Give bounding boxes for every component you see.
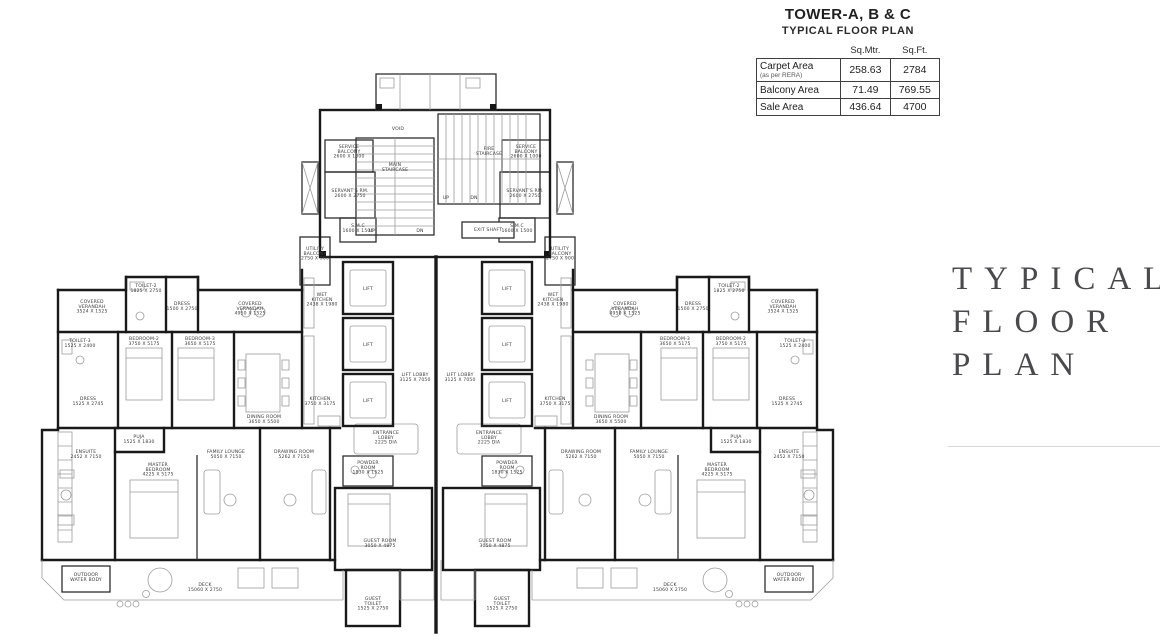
room-label-main-staircase: MAINSTAIRCASE — [382, 162, 408, 173]
room-label-covered-verandah: COVEREDVERANDAH3524 X 1525 — [767, 299, 798, 315]
room-label-toilet-2: TOILET-21825 X 2750 — [130, 283, 161, 294]
room-label-powder-room: POWDERROOM1830 X 1525 — [491, 460, 522, 476]
tower-title: TOWER-A, B & C — [756, 6, 940, 23]
room-label-drawing-room: DRAWING ROOM5262 X 7150 — [274, 449, 314, 460]
room-label-covered-verandah: COVEREDVERANDAH4950 X 1525 — [234, 301, 265, 317]
room-label-lift: LIFT — [502, 398, 512, 404]
room-label-servant-s-rm: SERVANT'S RM.2600 X 2750 — [331, 188, 368, 199]
room-label-lift: LIFT — [502, 342, 512, 348]
page-title: TYPICAL FLOOR PLAN — [952, 258, 1160, 387]
row-label: Balcony Area — [757, 82, 841, 99]
room-label-utility-balcony: UTILITYBALCONY2750 X 900 — [546, 246, 574, 262]
room-label-kitchen: KITCHEN3750 X 3175 — [539, 396, 570, 407]
table-row: Carpet Area(as per RERA) 258.63 2784 — [757, 59, 940, 82]
room-label-fire-staircase: FIRESTAIRCASE — [476, 146, 502, 157]
cell-sqft: 4700 — [890, 99, 939, 116]
row-label: Sale Area — [757, 99, 841, 116]
room-label-wet-kitchen: WETKITCHEN2438 X 1980 — [537, 292, 568, 308]
area-table-corner — [757, 45, 841, 59]
cell-sqft: 769.55 — [890, 82, 939, 99]
room-label-bedroom-3: BEDROOM-33650 X 5175 — [659, 336, 690, 347]
room-label-dn: DN — [470, 195, 477, 201]
room-label-dining-room: DINING ROOM3650 X 5500 — [594, 414, 628, 425]
room-label-toilet-3: TOILET-31525 X 2400 — [64, 338, 95, 349]
room-label-drawing-room: DRAWING ROOM5262 X 7150 — [561, 449, 601, 460]
room-label-guest-toilet: GUESTTOILET1525 X 2750 — [357, 596, 388, 612]
room-label-entrance-lobby: ENTRANCELOBBY2225 DIA — [476, 430, 502, 446]
room-label-puja: PUJA1525 X 1830 — [123, 434, 154, 445]
room-label-toilet-2: TOILET-21825 X 2750 — [713, 283, 744, 294]
room-label-dress: DRESS1500 X 2750 — [166, 301, 197, 312]
room-label-puja: PUJA1525 X 1830 — [720, 434, 751, 445]
room-label-utility-balcony: UTILITYBALCONY2750 X 900 — [301, 246, 329, 262]
cell-sqmtr: 258.63 — [841, 59, 890, 82]
row-label: Carpet Area — [760, 61, 813, 72]
room-label-lift-lobby: LIFT LOBBY3125 X 7050 — [399, 372, 430, 383]
room-label-outdoor: OUTDOORWATER BODY — [773, 572, 805, 583]
room-label-lift: LIFT — [363, 342, 373, 348]
room-label-lift: LIFT — [502, 286, 512, 292]
room-label-servant-s-rm: SERVANT'S RM.2600 X 2750 — [506, 188, 543, 199]
page-title-line2: FLOOR — [952, 301, 1160, 344]
room-label-kitchen: KITCHEN3750 X 3175 — [304, 396, 335, 407]
room-label-covered-verandah: COVEREDVERANDAH4950 X 1525 — [609, 301, 640, 317]
room-label-up: UP — [443, 195, 450, 201]
room-label-deck: DECK15060 X 2750 — [653, 582, 687, 593]
room-label-family-lounge: FAMILY LOUNGE5050 X 7150 — [630, 449, 668, 460]
room-label-bedroom-2: BEDROOM-23750 X 5175 — [128, 336, 159, 347]
room-label-bedroom-3: BEDROOM-33650 X 5175 — [184, 336, 215, 347]
room-label-ensuite: ENSUITE2452 X 7150 — [773, 449, 804, 460]
plan-header: TOWER-A, B & C TYPICAL FLOOR PLAN Sq.Mtr… — [756, 6, 940, 116]
col-sqmtr: Sq.Mtr. — [841, 45, 890, 59]
room-label-exit-shaft: EXIT SHAFT — [474, 227, 502, 233]
room-label-dining-room: DINING ROOM3650 X 5500 — [247, 414, 281, 425]
room-label-outdoor: OUTDOORWATER BODY — [70, 572, 102, 583]
table-row: Sale Area 436.64 4700 — [757, 99, 940, 116]
room-label-covered-verandah: COVEREDVERANDAH3524 X 1525 — [76, 299, 107, 315]
room-label-service-balcony: SERVICEBALCONY2600 X 1000 — [510, 144, 541, 160]
unit-left-walls — [42, 140, 434, 626]
room-label-dn: DN — [416, 228, 423, 234]
cell-sqmtr: 71.49 — [841, 82, 890, 99]
room-label-powder-room: POWDERROOM1830 X 1525 — [352, 460, 383, 476]
page: COVEREDVERANDAH3524 X 1525COVEREDVERANDA… — [0, 0, 1160, 643]
room-label-up: UP — [369, 228, 376, 234]
room-label-ensuite: ENSUITE2452 X 7150 — [70, 449, 101, 460]
table-row: Balcony Area 71.49 769.55 — [757, 82, 940, 99]
room-label-family-lounge: FAMILY LOUNGE5050 X 7150 — [207, 449, 245, 460]
divider — [948, 446, 1160, 447]
room-label-lift-lobby: LIFT LOBBY3125 X 7050 — [444, 372, 475, 383]
room-label-dress: DRESS1525 X 2745 — [72, 396, 103, 407]
room-label-deck: DECK15060 X 2750 — [188, 582, 222, 593]
unit-right-walls — [441, 140, 833, 626]
row-sublabel: (as per RERA) — [760, 72, 837, 79]
room-label-guest-room: GUEST ROOM3050 X 4875 — [479, 538, 512, 549]
room-label-dress: DRESS1525 X 2745 — [771, 396, 802, 407]
room-label-guest-toilet: GUESTTOILET1525 X 2750 — [486, 596, 517, 612]
room-label-wet-kitchen: WETKITCHEN2438 X 1980 — [306, 292, 337, 308]
tower-subtitle: TYPICAL FLOOR PLAN — [756, 25, 940, 37]
area-table: Sq.Mtr. Sq.Ft. Carpet Area(as per RERA) … — [756, 45, 940, 116]
cell-sqft: 2784 — [890, 59, 939, 82]
page-title-line1: TYPICAL — [952, 258, 1160, 301]
page-title-line3: PLAN — [952, 344, 1160, 387]
room-label-bedroom-2: BEDROOM-23750 X 5175 — [715, 336, 746, 347]
room-label-lift: LIFT — [363, 286, 373, 292]
col-sqft: Sq.Ft. — [890, 45, 939, 59]
cell-sqmtr: 436.64 — [841, 99, 890, 116]
room-label-dress: DRESS1500 X 2750 — [677, 301, 708, 312]
room-label-master-bedroom: MASTERBEDROOM4225 X 5175 — [142, 462, 173, 478]
room-label-entrance-lobby: ENTRANCELOBBY2225 DIA — [373, 430, 399, 446]
room-label-master-bedroom: MASTERBEDROOM4225 X 5175 — [701, 462, 732, 478]
room-label-guest-room: GUEST ROOM3050 X 4875 — [364, 538, 397, 549]
room-label-lift: LIFT — [363, 398, 373, 404]
room-label-void: VOID — [392, 126, 404, 132]
